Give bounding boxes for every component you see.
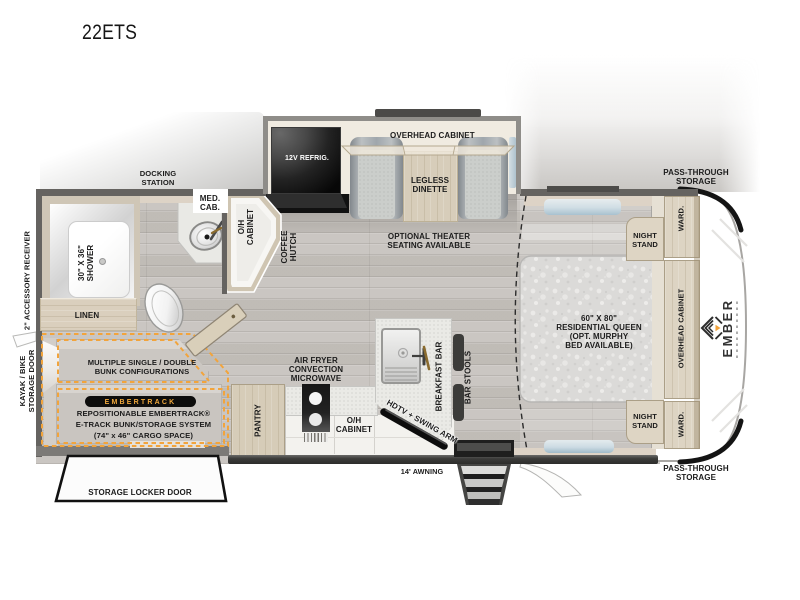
svg-text:EMBER: EMBER bbox=[720, 299, 735, 358]
